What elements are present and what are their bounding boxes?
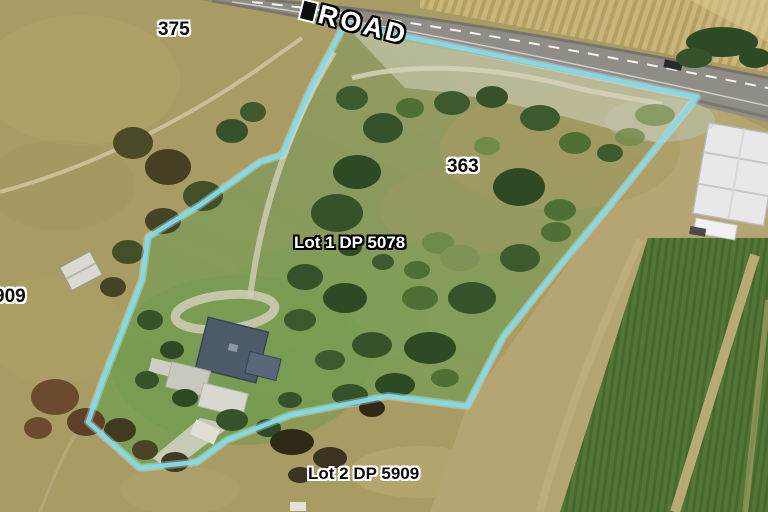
aerial-map[interactable]: ROAD 375 363 909 Lot 1 DP 5078 Lot 2 DP … xyxy=(0,0,768,512)
map-canvas xyxy=(0,0,768,512)
parcel-375-label: 375 xyxy=(158,20,190,39)
small-shed xyxy=(290,502,306,511)
parcel-363-label: 363 xyxy=(447,157,479,176)
lot1-label: Lot 1 DP 5078 xyxy=(294,234,405,251)
lot2-label: Lot 2 DP 5909 xyxy=(308,465,419,482)
lot-5909-partial-label: 909 xyxy=(0,287,26,306)
